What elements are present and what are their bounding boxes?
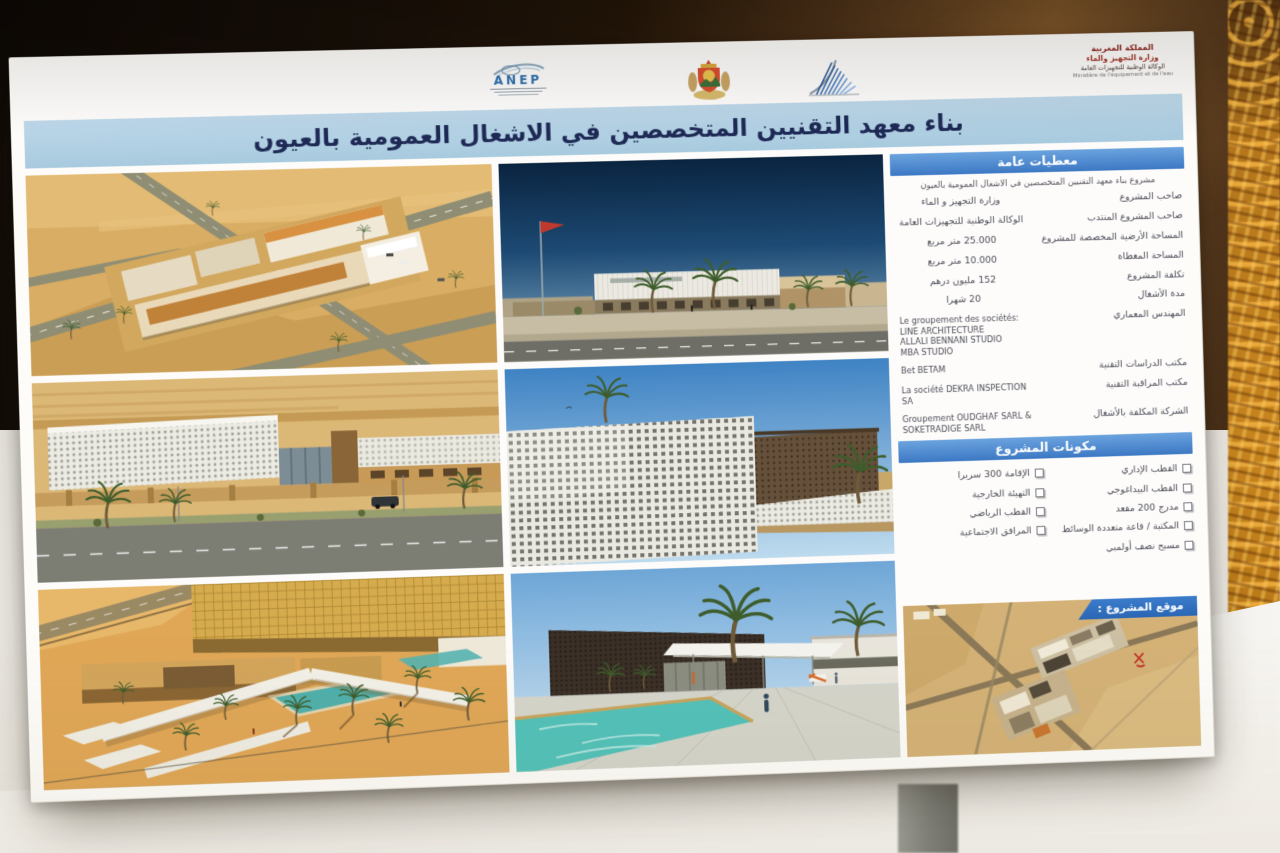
component-label: مسبح نصف أولمبي: [1106, 540, 1180, 554]
component-label: القطب البيداغوجي: [1107, 482, 1179, 496]
row-label: مكتب المراقبة التقنية: [1034, 377, 1187, 393]
project-poster: ANEP: [22, 42, 1201, 790]
component-item: المكتبة / قاعة متعددة الوسائط: [1051, 520, 1193, 536]
component-item: المرافق الاجتماعية: [903, 525, 1046, 541]
site-map: موقع المشروع :: [903, 596, 1201, 757]
checkbox-icon: [1184, 541, 1193, 550]
general-data-table: صاحب المشروع وزارة التجهيز و الماء صاحب …: [891, 185, 1192, 441]
row-value: 10.000 متر مربع: [896, 253, 1029, 268]
rendering-main-facade: [498, 154, 888, 362]
rendering-lattice-facade: [505, 358, 895, 567]
component-label: مدرج 200 مقعد: [1116, 502, 1179, 515]
poster-title: بناء معهد التقنيين المتخصصين في الاشغال …: [253, 108, 965, 153]
component-item: القطب البيداغوجي: [1050, 482, 1192, 498]
photo-scene: ANEP: [0, 0, 1280, 853]
rendering-campus-golden-aerial: [38, 574, 510, 790]
component-label: المكتبة / قاعة متعددة الوسائط: [1062, 521, 1180, 536]
rendering-pool-plaza: [511, 561, 901, 772]
rendering-entrance-perspective: [32, 369, 504, 583]
anep-sub-lines: [480, 87, 556, 96]
component-label: القطب الإداري: [1121, 463, 1177, 476]
checkbox-icon: [1184, 521, 1193, 530]
anep-logo: ANEP: [479, 59, 556, 96]
component-label: الإقامة 300 سريرا: [958, 468, 1031, 482]
row-label: مدة الأشغال: [1030, 288, 1185, 304]
checkbox-icon: [1183, 483, 1192, 492]
site-map-banner-label: موقع المشروع :: [1097, 599, 1183, 615]
poster-content: معطيات عامة مشروع بناء معهد التقنيين الم…: [25, 140, 1201, 790]
ministry-bridge-logo-icon: [801, 56, 865, 97]
row-label: الشركة المكلفة بالأشغال: [1035, 406, 1188, 422]
component-label: المرافق الاجتماعية: [960, 526, 1032, 540]
data-panel: معطيات عامة مشروع بناء معهد التقنيين الم…: [890, 147, 1202, 757]
checkbox-icon: [1182, 464, 1191, 473]
components-columns: القطب الإداري القطب البيداغوجي مدرج 200 …: [899, 454, 1196, 573]
component-label: التهيئة الخارجية: [972, 487, 1031, 500]
anep-wordmark: ANEP: [480, 73, 557, 87]
component-item: القطب الإداري: [1049, 463, 1191, 479]
row-label: تكلفة المشروع: [1029, 269, 1184, 285]
component-item: مسبح نصف أولمبي: [1052, 539, 1194, 555]
components-list-left: الإقامة 300 سريرا التهيئة الخارجية القطب…: [901, 468, 1046, 569]
row-value: Le groupement des sociétés: LINE ARCHITE…: [897, 312, 1033, 358]
presentation-board: ANEP: [9, 31, 1216, 803]
checkbox-icon: [1036, 526, 1045, 535]
component-item: الإقامة 300 سريرا: [901, 468, 1044, 484]
row-value: الوكالة الوطنية للتجهيزات العامة: [894, 214, 1027, 229]
row-label: المهندس المعماري: [1032, 308, 1185, 324]
row-label: صاحب المشروع: [1027, 190, 1182, 206]
rendering-campus-aerial: [25, 164, 497, 376]
renderings-grid: [25, 154, 900, 790]
row-value: Bet BETAM: [899, 362, 1034, 376]
components-list-right: القطب الإداري القطب البيداغوجي مدرج 200 …: [1049, 463, 1193, 563]
component-label: القطب الرياضي: [969, 506, 1031, 519]
row-value: 20 شهرا: [897, 293, 1030, 309]
table-gap-shadow: [898, 784, 958, 853]
table-row: المهندس المعماري Le groupement des socié…: [896, 304, 1187, 362]
component-item: القطب الرياضي: [902, 506, 1045, 522]
row-value: 152 مليون درهم: [896, 273, 1029, 288]
checkbox-icon: [1035, 469, 1044, 478]
row-value: Groupement OUDGHAF SARL & SOKETRADIGE SA…: [900, 410, 1036, 435]
row-label: صاحب المشروع المنتدب: [1027, 210, 1182, 226]
morocco-coat-of-arms-icon: [685, 56, 732, 103]
row-value: 25.000 متر مربع: [895, 234, 1028, 249]
row-label: مكتب الدراسات التقنية: [1034, 357, 1187, 373]
row-value: وزارة التجهيز و الماء: [894, 194, 1027, 209]
row-label: المساحة المغطاة: [1029, 249, 1184, 265]
components-header-label: مكونات المشروع: [995, 438, 1097, 456]
general-data-header-label: معطيات عامة: [997, 152, 1078, 169]
row-label: المساحة الأرضية المخصصة للمشروع: [1028, 230, 1183, 246]
ministry-text-block: المملكة المغربية وزارة التجهيز والماء ال…: [1063, 42, 1181, 80]
component-item: التهيئة الخارجية: [902, 487, 1045, 503]
component-item: مدرج 200 مقعد: [1051, 501, 1193, 517]
checkbox-icon: [1035, 488, 1044, 497]
checkbox-icon: [1036, 507, 1045, 516]
checkbox-icon: [1183, 502, 1192, 511]
row-value: La société DEKRA INSPECTION SA: [899, 382, 1035, 407]
